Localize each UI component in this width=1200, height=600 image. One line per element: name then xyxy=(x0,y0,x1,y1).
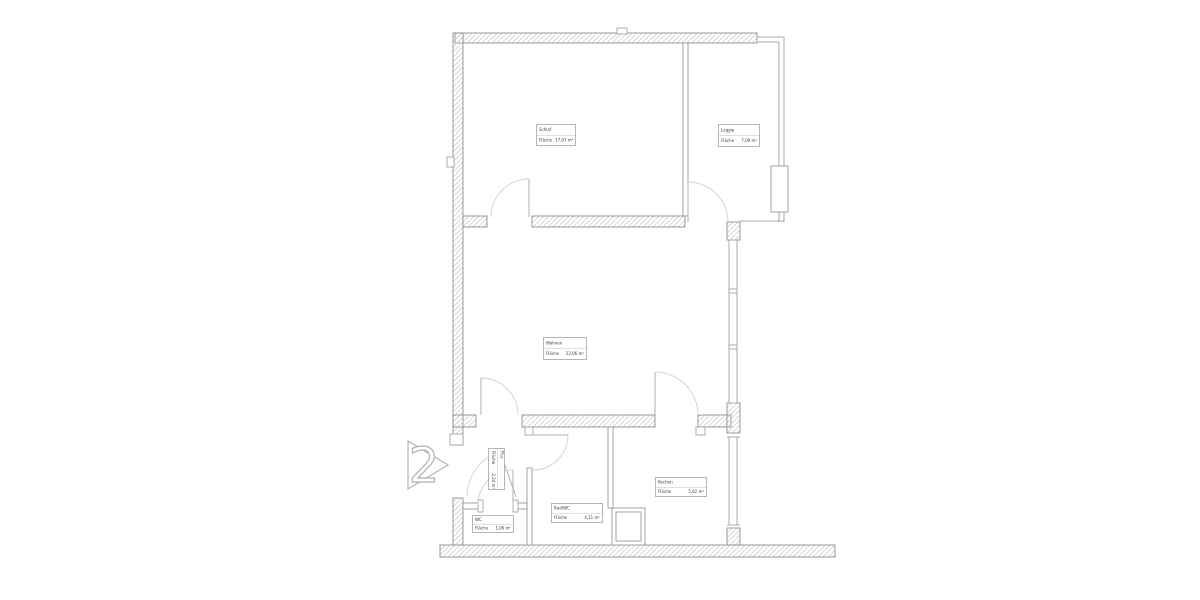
unit-number: 2 xyxy=(409,438,440,494)
wall-break-mark-left xyxy=(447,157,454,167)
door-arc-schlaf xyxy=(491,179,529,217)
room-area-row: Fläche 7,09 m² xyxy=(719,136,759,146)
wall-break-mark-top xyxy=(617,28,627,34)
jamb-wc-left xyxy=(478,500,483,512)
room-label-schlaf: Schlaf Fläche 17,07 m² xyxy=(536,124,576,146)
railing-panel xyxy=(771,166,788,212)
wall-bad-kochen xyxy=(608,427,613,508)
wall-flur-bad xyxy=(527,468,532,545)
room-area-row: Fläche 4,11 m² xyxy=(552,513,602,522)
area-word: Fläche xyxy=(721,139,734,144)
room-name: WC xyxy=(473,516,513,524)
room-label-loggia-content: Loggia Fläche 7,09 m² xyxy=(719,125,759,146)
room-label-wc-content: WC Fläche 1,06 m² xyxy=(473,516,513,532)
pier-loggia xyxy=(727,222,740,240)
door-arc-kochen xyxy=(655,372,698,415)
room-label-flur-rotated: Flur Fläche 2,24 m² xyxy=(489,449,505,490)
room-name: Wohnen xyxy=(544,338,586,349)
room-label-flur: Flur Fläche 2,24 m² xyxy=(488,448,505,490)
room-area-row: Fläche 17,07 m² xyxy=(537,135,575,145)
area-value: 22,06 m² xyxy=(566,352,584,357)
wall-wohnen-bottom-stub xyxy=(453,415,476,427)
area-value: 1,06 m² xyxy=(495,526,511,531)
room-area-row: Fläche 1,06 m² xyxy=(473,524,513,532)
room-area-row: Fläche 22,06 m² xyxy=(544,349,586,359)
door-arc-flur xyxy=(481,378,518,415)
jamb-kochen-door xyxy=(696,427,705,435)
interior-walls xyxy=(447,28,705,545)
door-arc-bad xyxy=(533,435,568,470)
area-value: 5,62 m² xyxy=(688,489,704,494)
room-name: Flur xyxy=(497,449,505,490)
area-word: Fläche xyxy=(491,451,496,464)
room-name: Bad/WC xyxy=(552,504,602,513)
jamb-entrance xyxy=(450,434,463,445)
wall-schlaf-bottom-right xyxy=(532,216,685,227)
room-label-kochen-content: Kochen Fläche 5,62 m² xyxy=(656,478,706,496)
area-word: Fläche xyxy=(554,515,567,520)
area-value: 7,09 m² xyxy=(741,139,757,144)
wall-left-lower xyxy=(453,498,463,545)
window-mullions xyxy=(729,289,737,349)
room-area-row: Fläche 5,62 m² xyxy=(656,487,706,496)
room-label-wohnen-content: Wohnen Fläche 22,06 m² xyxy=(544,338,586,359)
area-word: Fläche xyxy=(539,138,552,143)
fixtures xyxy=(612,508,645,545)
room-label-bad-wc-content: Bad/WC Fläche 4,11 m² xyxy=(552,504,602,522)
shaft-inner xyxy=(616,512,641,541)
doors xyxy=(467,179,728,505)
area-value: 17,07 m² xyxy=(555,138,573,143)
wall-bottom xyxy=(440,545,835,557)
room-label-kochen: Kochen Fläche 5,62 m² xyxy=(655,477,707,497)
window-band-right xyxy=(729,240,737,403)
area-word: Fläche xyxy=(546,352,559,357)
room-name: Schlaf xyxy=(537,125,575,135)
wall-wohnen-bottom-mid xyxy=(522,415,655,427)
area-value: 4,11 m² xyxy=(584,515,600,520)
windows-and-railings xyxy=(727,37,788,525)
area-word: Fläche xyxy=(475,526,488,531)
room-area-row: Fläche 2,24 m² xyxy=(489,449,497,490)
wall-wohnen-bottom-right xyxy=(698,415,731,427)
wall-top xyxy=(455,33,757,43)
floor-plan-page: 2 Schlaf Fläche 17,07 m² Loggia Fläche 7… xyxy=(0,0,1200,600)
wall-right-bottom xyxy=(727,528,740,545)
room-name: Loggia xyxy=(719,125,759,136)
area-value: 2,24 m² xyxy=(491,473,496,489)
window-kitchen xyxy=(727,437,740,525)
wall-schlaf-loggia xyxy=(683,43,688,216)
wall-right-mid xyxy=(727,403,740,433)
room-label-wc: WC Fläche 1,06 m² xyxy=(472,515,514,533)
entrance-marker: 2 xyxy=(408,438,448,494)
room-label-schlaf-content: Schlaf Fläche 17,07 m² xyxy=(537,125,575,145)
wall-schlaf-bottom-left xyxy=(463,216,487,227)
door-arc-loggia xyxy=(688,182,728,222)
room-label-bad-wc: Bad/WC Fläche 4,11 m² xyxy=(551,503,603,523)
area-word: Fläche xyxy=(658,489,671,494)
room-label-wohnen: Wohnen Fläche 22,06 m² xyxy=(543,337,587,360)
room-name: Kochen xyxy=(656,478,706,487)
room-label-flur-content: Flur Fläche 2,24 m² xyxy=(489,449,505,490)
room-label-loggia: Loggia Fläche 7,09 m² xyxy=(718,124,760,147)
wall-left-upper xyxy=(453,33,463,445)
jamb-wc-right xyxy=(513,500,518,512)
jamb-bad-door xyxy=(525,427,533,435)
